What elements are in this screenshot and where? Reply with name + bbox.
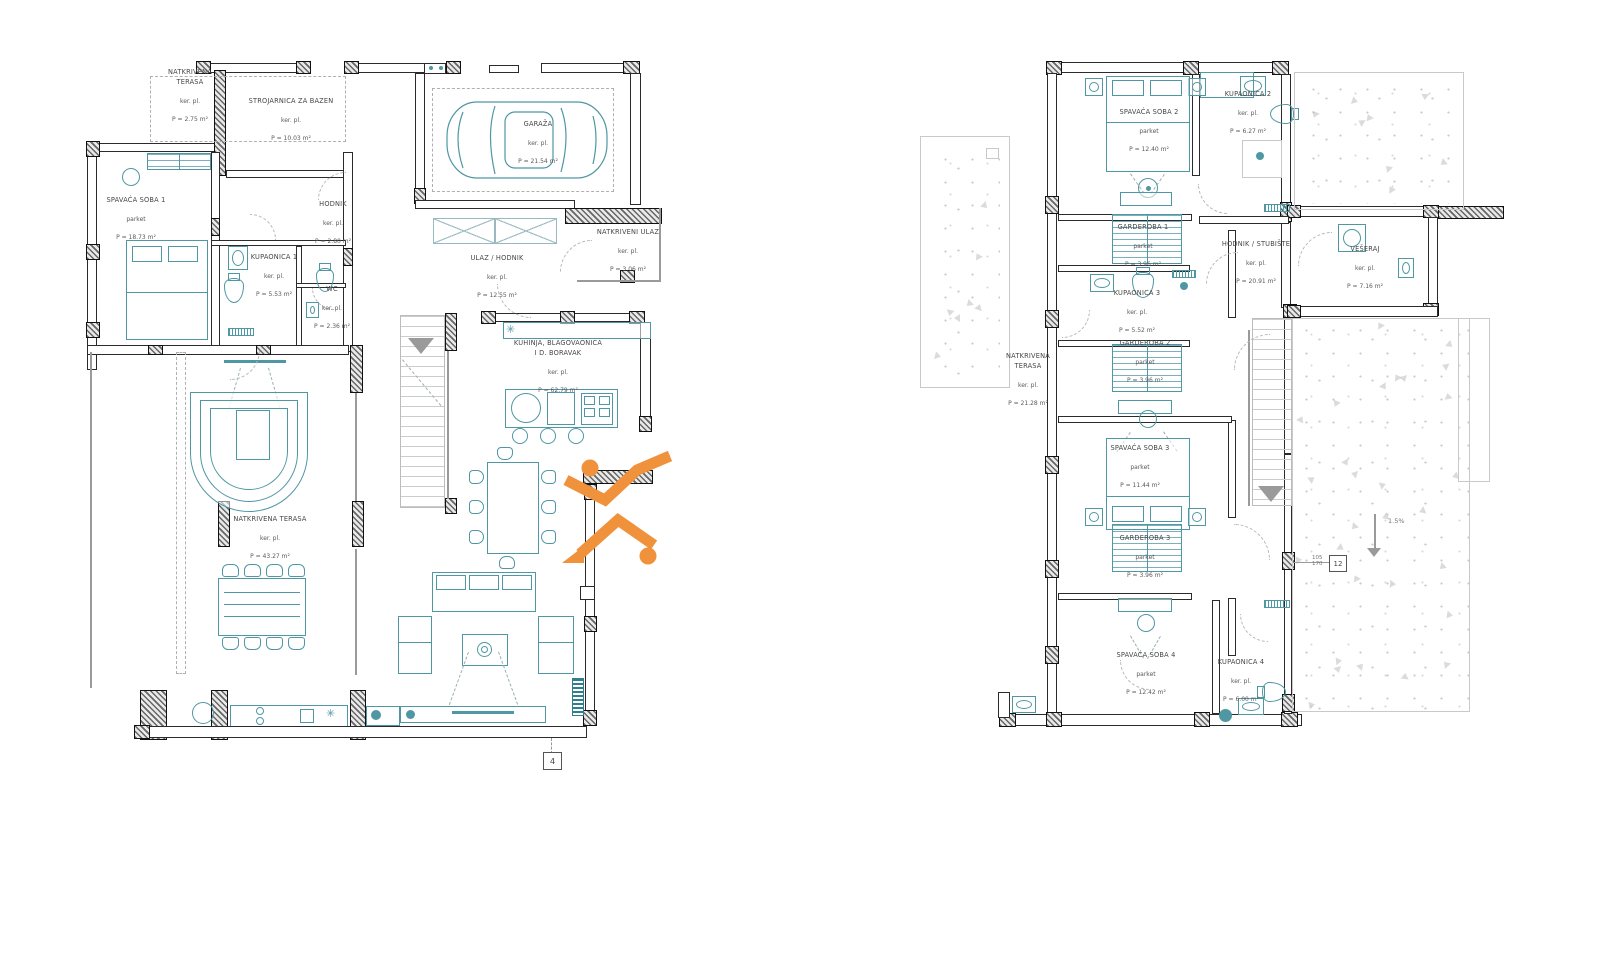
texture-triangle — [1445, 340, 1455, 350]
watermark-logo — [556, 444, 674, 569]
furniture — [469, 500, 484, 514]
roof-texture — [932, 148, 1000, 378]
furniture — [398, 616, 432, 674]
texture-triangle — [973, 251, 983, 260]
fixture-circle — [1137, 614, 1155, 632]
watermark-dot-top — [582, 460, 599, 477]
wall — [135, 726, 587, 738]
fixture-circle — [1192, 512, 1202, 522]
vent-grille — [228, 328, 254, 336]
wall-hatched — [445, 498, 457, 514]
radiator — [572, 678, 584, 716]
door-swing-arc — [230, 350, 260, 380]
furniture — [1112, 506, 1144, 522]
furniture — [1150, 506, 1182, 522]
fixture-dot — [439, 66, 443, 70]
wall-hatched — [1272, 61, 1289, 75]
texture-triangle — [1400, 673, 1409, 680]
room-label-spavaca-soba-2: SPAVAĆA SOBA 2 parket P = 12.40 m² — [1119, 99, 1178, 163]
texture-triangle — [980, 201, 990, 211]
fixture-dot — [1180, 282, 1188, 290]
sink — [1012, 696, 1036, 713]
wall — [1292, 306, 1438, 317]
outline-box — [986, 148, 999, 159]
direction-arrow — [408, 338, 434, 354]
dashed-outline — [176, 352, 186, 674]
texture-triangle — [1446, 610, 1453, 619]
texture-triangle — [1418, 506, 1427, 516]
sink — [228, 246, 248, 270]
furniture — [236, 410, 270, 460]
section-marker: 4 — [543, 752, 562, 770]
furniture — [222, 637, 239, 650]
furniture — [502, 575, 532, 590]
fixture-circle — [481, 646, 488, 653]
door-swing-arc — [1240, 614, 1268, 642]
wall-hatched — [583, 710, 597, 726]
wall — [1281, 74, 1291, 204]
furniture — [266, 637, 283, 650]
wall-hatched — [296, 61, 311, 74]
vent-grille — [1172, 270, 1196, 278]
furniture — [1112, 80, 1144, 96]
furniture-line — [398, 642, 432, 643]
outline-box — [1458, 318, 1490, 482]
wall-hatched — [481, 311, 496, 324]
wall-hatched — [446, 61, 461, 74]
texture-triangle — [1389, 579, 1396, 587]
furniture-line — [224, 592, 300, 593]
texture-triangle — [1333, 666, 1342, 674]
texture-triangle — [1365, 113, 1375, 122]
wall-hatched — [86, 141, 100, 157]
room-label-spavaca-soba-4: SPAVAĆA SOBA 4 parket P = 12.42 m² — [1116, 642, 1175, 706]
furniture — [1120, 192, 1172, 206]
wall-hatched — [344, 61, 359, 74]
texture-triangle — [934, 351, 942, 360]
texture-triangle — [1351, 96, 1359, 105]
texture-triangle — [1438, 158, 1448, 168]
room-label-hodnik-stubiste: HODNIK / STUBIŠTE ker. pl. P = 20.91 m² — [1222, 231, 1290, 295]
fixture-circle — [1139, 410, 1157, 428]
furniture — [436, 575, 466, 590]
texture-triangle — [1379, 480, 1387, 490]
roof-texture — [1300, 78, 1458, 204]
room-label-garderoba-3: GARDEROBA 3 parket P = 3.96 m² — [1120, 525, 1171, 589]
room-label-natkrivena-terasa-small: NATKRIVENA TERASA ker. pl. P = 2.75 m² — [168, 59, 212, 133]
furniture-line — [224, 604, 300, 605]
texture-triangle — [1375, 320, 1385, 329]
texture-triangle — [1441, 659, 1451, 669]
furniture-line — [452, 711, 514, 714]
fixture-circle — [512, 428, 528, 444]
sightline-dashed — [498, 652, 518, 705]
roof-texture — [1293, 319, 1469, 711]
door-swing-arc — [1298, 232, 1332, 266]
furniture — [487, 462, 539, 554]
door-swing-arc — [250, 214, 276, 240]
sink — [1090, 274, 1114, 292]
vent-grille — [1264, 600, 1290, 608]
fixture-dot — [406, 710, 415, 719]
wall-hatched — [1046, 712, 1062, 727]
direction-arrow — [1367, 548, 1381, 557]
door-swing-arc — [560, 240, 592, 272]
slope-label: 1.5% — [1388, 518, 1405, 525]
furniture — [499, 556, 515, 569]
texture-triangle — [1335, 657, 1342, 666]
wall-hatched — [1194, 712, 1210, 727]
room-label-veseraj: VEŠERAJ ker. pl. P = 7.16 m² — [1347, 236, 1383, 300]
texture-triangle — [1349, 522, 1359, 532]
wall — [1199, 216, 1289, 224]
texture-triangle — [974, 302, 984, 310]
texture-triangle — [1384, 163, 1394, 173]
room-label-garaza: GARAŽA ker. pl. P = 21.54 m² — [518, 111, 558, 175]
wall — [1228, 420, 1236, 518]
wall-hatched — [1045, 646, 1059, 664]
texture-triangle — [1356, 661, 1366, 671]
door-swing-arc — [1062, 310, 1090, 338]
fixture-dot — [429, 66, 433, 70]
fixture-circle — [122, 168, 140, 186]
furniture — [469, 575, 499, 590]
fixture-circle — [568, 428, 584, 444]
texture-triangle — [1350, 469, 1358, 478]
texture-triangle — [1379, 383, 1389, 392]
partition-line — [447, 351, 449, 499]
room-label-strojarnica: STROJARNICA ZA BAZEN ker. pl. P = 10.03 … — [249, 88, 334, 152]
room-label-natkrivena-terasa-large: NATKRIVENA TERASA ker. pl. P = 43.27 m² — [233, 506, 306, 570]
texture-triangle — [1386, 184, 1396, 193]
closet-x — [433, 218, 495, 244]
texture-triangle — [1336, 543, 1346, 553]
wall — [580, 586, 595, 600]
texture-triangle — [965, 299, 975, 309]
fixture-dot — [1256, 152, 1264, 160]
wall — [630, 73, 641, 205]
partition-line — [659, 208, 661, 282]
furniture — [469, 530, 484, 544]
room-label-kuhinja: KUHINJA, BLAGOVAONICA I D. BORAVAK ker. … — [514, 330, 602, 404]
wall-hatched — [86, 244, 100, 260]
detail-marker: 12 — [1329, 555, 1347, 572]
wall — [415, 200, 575, 209]
closet-x — [495, 218, 557, 244]
wall — [211, 152, 220, 346]
texture-triangle — [1444, 392, 1453, 400]
fixture-circle — [1089, 512, 1099, 522]
wardrobe — [147, 153, 211, 170]
wall — [415, 73, 425, 201]
furniture-line — [126, 292, 208, 293]
wall-hatched — [1281, 712, 1298, 727]
furniture — [400, 706, 546, 723]
texture-triangle — [1351, 573, 1361, 582]
room-label-kupaonica-4: KUPAONICA 4 ker. pl. P = 6.00 m² — [1218, 649, 1265, 713]
furniture-line — [224, 616, 300, 617]
partition-line — [355, 393, 357, 501]
texture-triangle — [1421, 94, 1429, 101]
furniture — [599, 408, 610, 417]
texture-triangle — [1307, 474, 1317, 484]
furniture — [541, 500, 556, 514]
wall-hatched — [1045, 196, 1059, 214]
texture-triangle — [1310, 110, 1320, 118]
wall-hatched — [445, 313, 457, 351]
furniture — [538, 616, 574, 674]
sink — [1398, 258, 1414, 278]
partition-line — [355, 549, 357, 675]
toilet — [224, 278, 244, 303]
door-swing-arc — [1234, 524, 1270, 560]
door-swing-arc — [1198, 184, 1228, 214]
fixture-circle — [1089, 82, 1099, 92]
furniture — [584, 408, 595, 417]
fridge-icon: ✳ — [326, 708, 340, 722]
sightline-dashed — [449, 652, 469, 705]
room-label-garderoba-1: GARDEROBA 1 parket P = 3.96 m² — [1118, 214, 1169, 278]
wall — [489, 65, 519, 73]
furniture — [1118, 598, 1172, 612]
wall — [87, 143, 217, 152]
toilet — [1270, 104, 1294, 124]
vent-grille — [1264, 204, 1290, 212]
watermark-dot-bottom — [640, 548, 657, 565]
furniture — [218, 578, 306, 636]
fixture-dot — [371, 710, 381, 720]
fixture-dot — [1146, 186, 1151, 191]
room-label-kupaonica-2: KUPAONICA 2 ker. pl. P = 6.27 m² — [1225, 81, 1272, 145]
wall-hatched — [211, 218, 220, 236]
fixture-circle — [192, 702, 214, 724]
room-label-spavaca-soba-1: SPAVAĆA SOBA 1 parket P = 18.73 m² — [106, 187, 165, 251]
partition-line — [1374, 514, 1376, 548]
wall-hatched — [1287, 305, 1301, 318]
texture-triangle — [1331, 399, 1341, 408]
furniture — [244, 637, 261, 650]
fixture-circle — [256, 717, 264, 725]
furniture — [300, 709, 314, 723]
furniture — [541, 470, 556, 484]
wall-hatched — [134, 725, 150, 739]
texture-triangle — [1437, 562, 1447, 572]
texture-triangle — [1341, 459, 1351, 468]
furniture — [288, 637, 305, 650]
wall-hatched — [1045, 456, 1059, 474]
fixture-circle — [1192, 82, 1202, 92]
furniture — [1150, 80, 1182, 96]
wall-hatched — [86, 322, 100, 338]
texture-triangle — [954, 314, 960, 322]
furniture — [541, 530, 556, 544]
texture-triangle — [1308, 700, 1315, 709]
room-label-natkriveni-ulaz: NATKRIVENI ULAZ ker. pl. P = 3.06 m² — [597, 219, 659, 283]
fixture-circle — [540, 428, 556, 444]
fixture-circle — [256, 707, 264, 715]
furniture-line — [538, 642, 574, 643]
detail-dimensions: 105 170 — [1312, 555, 1323, 568]
wall-hatched — [584, 616, 597, 632]
room-label-hodnik: HODNIK ker. pl. P = 2.80 m² — [315, 191, 351, 255]
partition-line — [90, 352, 92, 688]
direction-arrow — [1258, 486, 1284, 502]
wall-hatched — [1045, 560, 1059, 578]
floor-plan-sheet: NATKRIVENA TERASA ker. pl. P = 2.75 m² S… — [0, 0, 1600, 959]
wall-hatched — [1183, 61, 1199, 75]
room-label-ulaz-hodnik: ULAZ / HODNIK ker. pl. P = 12.55 m² — [470, 245, 523, 309]
room-label-wc: WC ker. pl. P = 2.36 m² — [314, 276, 350, 340]
wall — [998, 692, 1010, 718]
texture-triangle — [1440, 362, 1449, 372]
room-label-spavaca-soba-3: SPAVAĆA SOBA 3 parket P = 11.44 m² — [1110, 435, 1169, 499]
furniture — [469, 470, 484, 484]
wall — [1428, 217, 1438, 309]
furniture — [168, 246, 198, 262]
room-label-garderoba-2: GARDEROBA 2 parket P = 3.96 m² — [1120, 330, 1171, 394]
furniture — [497, 447, 513, 460]
wall-hatched — [352, 501, 364, 547]
door-swing-arc — [1234, 334, 1270, 370]
wall-hatched — [639, 416, 652, 432]
wall-hatched — [1045, 310, 1059, 328]
room-label-natkrivena-terasa-upper: NATKRIVENA TERASA ker. pl. P = 21.28 m² — [1006, 343, 1050, 417]
wall-hatched — [148, 345, 163, 355]
wall-hatched — [350, 345, 363, 393]
texture-triangle — [1296, 414, 1306, 423]
room-label-kupaonica-1: KUPAONICA 1 ker. pl. P = 5.53 m² — [251, 244, 298, 308]
wall — [87, 345, 349, 355]
wall — [1228, 598, 1236, 656]
